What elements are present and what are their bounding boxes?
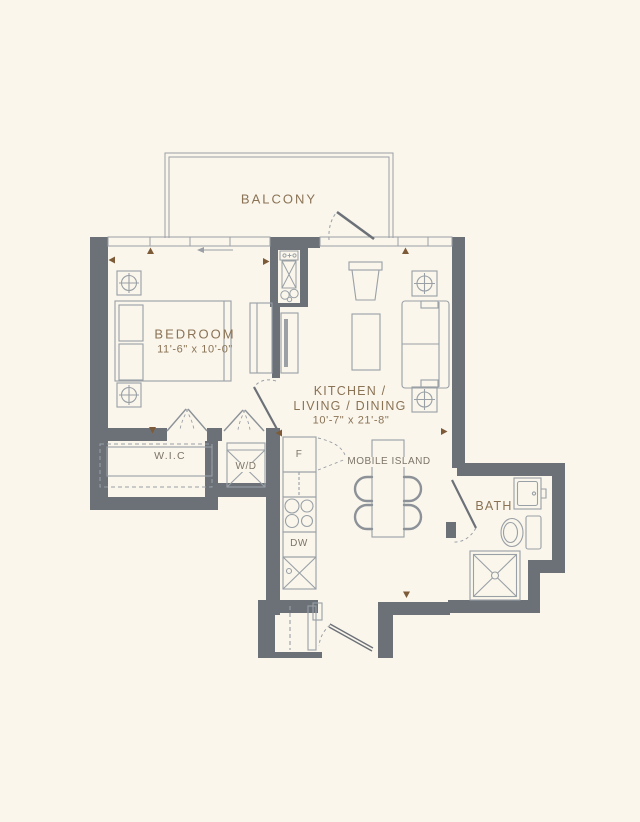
pillow xyxy=(119,344,143,380)
window-bedroom xyxy=(108,237,270,246)
living-label-line2: LIVING / DINING xyxy=(293,400,406,413)
tv xyxy=(284,319,288,367)
wall-bath-right xyxy=(552,476,565,573)
wall-left xyxy=(90,237,108,510)
chair xyxy=(355,477,372,501)
arrow-right-living xyxy=(441,428,448,435)
wall-entry-leg xyxy=(378,615,393,658)
arrow-up-living xyxy=(402,248,409,255)
bath-label: BATH xyxy=(475,500,512,513)
wall-closet-bottom xyxy=(258,652,322,658)
entry-door-leaf xyxy=(329,624,373,651)
nightstand-lamp-top xyxy=(117,271,141,295)
chair xyxy=(355,505,372,529)
dining-chairs xyxy=(355,477,421,529)
bath-door-swing xyxy=(453,528,476,542)
tv-unit xyxy=(281,313,298,373)
wall-bath-top xyxy=(457,463,565,476)
bath-door-leaf xyxy=(452,480,476,528)
desk-chair xyxy=(349,262,382,300)
wic-door-swing xyxy=(180,409,194,430)
wall-step-h xyxy=(528,560,565,573)
arrow-left-bedroom xyxy=(109,257,116,264)
wall-wd-bottom xyxy=(218,483,266,497)
bedroom-label: BEDROOM xyxy=(154,328,235,341)
entry-door-swing xyxy=(319,625,330,646)
mobile-island-table xyxy=(372,440,404,537)
arrow-up-bedroom xyxy=(147,248,154,255)
mobile-island-label: MOBILE ISLAND xyxy=(344,457,433,467)
washer-dryer-label: W/D xyxy=(233,462,260,472)
wall-step-v xyxy=(528,573,540,602)
window-living xyxy=(320,237,452,246)
side-table-lamp-top xyxy=(412,271,437,296)
chair xyxy=(404,477,421,501)
living-dims: 10'-7" x 21'-8" xyxy=(313,416,390,427)
wd-door-leaves xyxy=(224,410,264,431)
dishwasher-label: DW xyxy=(290,539,308,549)
balcony-door-swing xyxy=(329,212,337,240)
wall-bath-door-stub xyxy=(446,522,456,538)
window-slider-arrow xyxy=(197,247,204,253)
wall-bedroom-divider xyxy=(272,307,280,378)
arrow-down-entry xyxy=(403,592,410,599)
wall-wic-bottom xyxy=(90,497,218,510)
wic-label: W.I.C xyxy=(154,451,186,462)
wic-door-leaves xyxy=(167,409,207,431)
bedroom-door-swing xyxy=(254,380,276,387)
living-label-line1: KITCHEN / xyxy=(314,385,387,398)
toilet xyxy=(501,516,541,549)
arrow-right-bedroom xyxy=(263,258,270,265)
wall-right xyxy=(452,237,465,468)
balcony-label: BALCONY xyxy=(241,193,317,206)
cooktop xyxy=(283,497,316,532)
wall-wic-top xyxy=(107,428,167,441)
fridge-label: F xyxy=(296,450,303,460)
bedroom-dims: 11'-6" x 10'-0" xyxy=(157,345,233,356)
fridge-door-line xyxy=(318,459,346,470)
sofa xyxy=(402,301,449,388)
balcony-door-leaf xyxy=(337,212,374,239)
pillow xyxy=(119,305,143,341)
wall-corridor-bottom xyxy=(378,602,450,615)
bath-sink xyxy=(514,478,546,509)
shower xyxy=(470,551,520,600)
side-table-lamp-bottom xyxy=(412,387,437,412)
coffee-table xyxy=(352,314,380,370)
nightstand-lamp-bottom xyxy=(117,383,141,407)
wall-wic-stub xyxy=(207,428,222,441)
wall-kitchen xyxy=(266,428,280,615)
fridge-door-swing xyxy=(318,438,346,459)
wall-bath-bottom xyxy=(448,600,540,613)
kitchen-sink xyxy=(283,557,316,589)
floorplan: BALCONY BEDROOM 11'-6" x 10'-0" KITCHEN … xyxy=(0,0,640,822)
chair xyxy=(404,505,421,529)
wardrobe xyxy=(250,303,272,373)
